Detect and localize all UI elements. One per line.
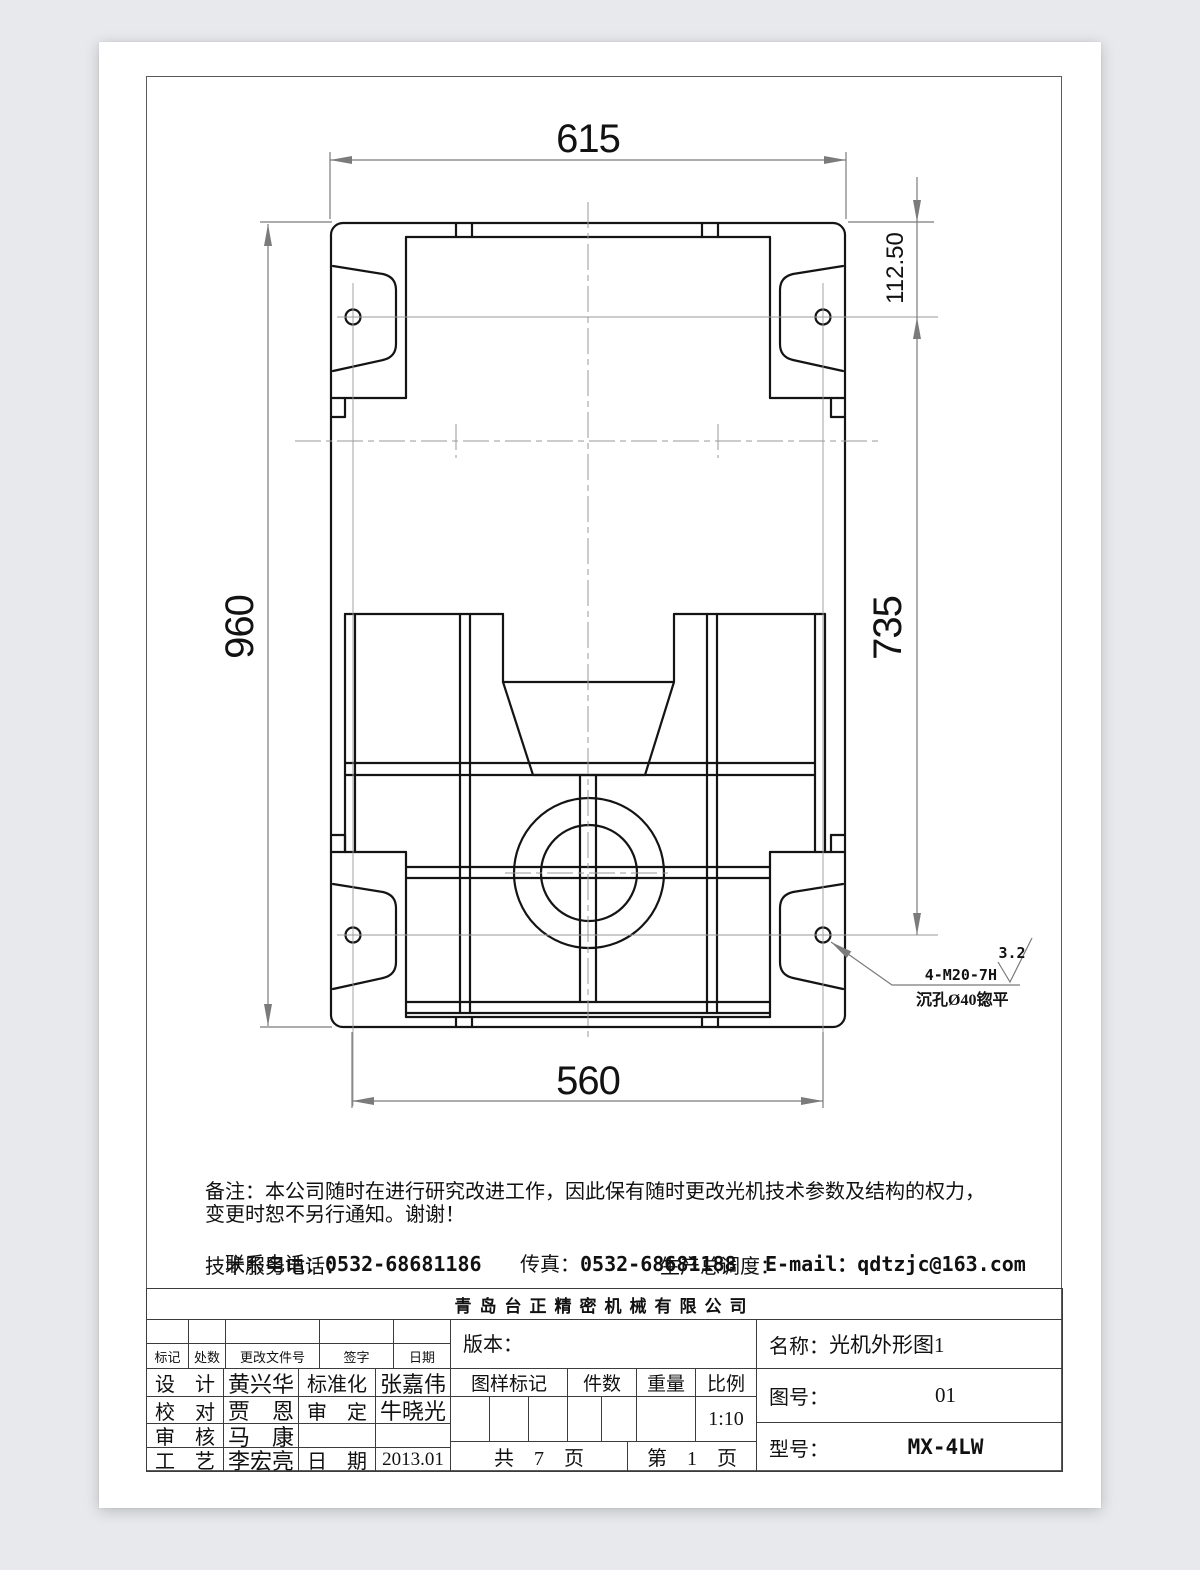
top-left-mounting-lug: [331, 237, 406, 417]
dim-height-left: 960: [218, 595, 262, 659]
note-line-1: 备注：本公司随时在进行研究改进工作，因此保有随时更改光机技术参数及结构的权力，: [205, 1181, 985, 1204]
mark-cell-empty: [450, 1396, 490, 1442]
sig-name-approve: 牛晓光: [375, 1396, 451, 1424]
weight-cell-empty: [636, 1396, 696, 1442]
rev-header-mark: 标记: [146, 1343, 189, 1369]
dim-width-bottom: 560: [556, 1059, 620, 1103]
mark-cell-empty: [528, 1396, 568, 1442]
sig-date-value: 2013.01: [375, 1447, 451, 1472]
rev-cell-empty: [319, 1319, 394, 1344]
rib-lines: [346, 614, 815, 1013]
scanned-engineering-drawing-page: { "drawing": { "dims": { "width_top": "6…: [0, 0, 1200, 1570]
sig-cell-empty: [298, 1423, 376, 1448]
machine-base-top-view-drawing: 615 960 735 112.50 560 4-M20-7H 沉孔Ø40锪平 …: [146, 76, 1062, 1176]
sig-cell-empty: [375, 1423, 451, 1448]
rev-cell-empty: [225, 1319, 320, 1344]
rev-header-date: 日期: [393, 1343, 451, 1369]
version-cell: 版本：: [450, 1319, 757, 1369]
service-phone-label: 技术服务电话：: [205, 1256, 345, 1279]
mark-header-sample: 图样标记: [450, 1368, 568, 1397]
mark-header-weight: 重量: [636, 1368, 696, 1397]
sig-role-design: 设 计: [146, 1368, 224, 1397]
model-label: 型号：: [757, 1433, 829, 1462]
sig-name-review: 马 康: [223, 1423, 299, 1448]
dimension-texts: 615 960 735 112.50 560 4-M20-7H 沉孔Ø40锪平 …: [218, 117, 1026, 1103]
sig-name-check: 贾 恩: [223, 1396, 299, 1424]
sig-role-date: 日 期: [298, 1447, 376, 1472]
dimension-lines: [260, 152, 1032, 1108]
sig-name-process: 李宏亮: [223, 1447, 299, 1472]
drawing-no-label: 图号：: [757, 1381, 829, 1410]
rev-header-sign: 签字: [319, 1343, 394, 1369]
email-value: qdtzjc@163.com: [857, 1252, 1026, 1276]
counterbore-callout: 沉孔Ø40锪平: [916, 990, 1008, 1009]
roughness-value: 3.2: [998, 944, 1025, 962]
pages-total-cell: 共 7 页: [450, 1441, 628, 1472]
rev-header-docno: 更改文件号: [225, 1343, 320, 1369]
mark-header-scale: 比例: [695, 1368, 757, 1397]
rev-header-count: 处数: [188, 1343, 226, 1369]
drawing-no-cell: 图号： 01: [756, 1368, 1063, 1423]
mark-header-qty: 件数: [567, 1368, 637, 1397]
part-name-label: 名称：: [757, 1330, 829, 1359]
mark-cell-empty: [489, 1396, 529, 1442]
rev-cell-empty: [188, 1319, 226, 1344]
bottom-right-mounting-lug: [770, 835, 845, 1017]
model-value: MX-4LW: [829, 1435, 1062, 1459]
dim-offset-right: 112.50: [882, 232, 909, 304]
sig-role-check: 校 对: [146, 1396, 224, 1424]
bottom-left-mounting-lug: [331, 835, 406, 1017]
model-cell: 型号： MX-4LW: [756, 1422, 1063, 1472]
contact-phone: 0532-68681186: [325, 1252, 482, 1276]
sig-name-standardize: 张嘉伟: [375, 1368, 451, 1397]
drawing-sheet: 615 960 735 112.50 560 4-M20-7H 沉孔Ø40锪平 …: [99, 42, 1101, 1508]
sig-role-review: 审 核: [146, 1423, 224, 1448]
part-name-cell: 名称： 光机外形图1: [756, 1319, 1063, 1369]
top-right-mounting-lug: [770, 237, 845, 417]
part-name-value: 光机外形图1: [829, 1329, 945, 1359]
rev-cell-empty: [393, 1319, 451, 1344]
title-block: 青岛台正精密机械有限公司 标记 处数 更改文件号 签字 日期 设 计 黄兴华 标…: [146, 1288, 1063, 1472]
scale-value: 1:10: [695, 1396, 757, 1442]
page-number-cell: 第 1 页: [627, 1441, 757, 1472]
note-line-2: 变更时恕不另行通知。谢谢！: [205, 1204, 465, 1227]
sig-name-design: 黄兴华: [223, 1368, 299, 1397]
fax-label: 传真：: [520, 1254, 580, 1276]
drawing-no-value: 01: [829, 1383, 1062, 1408]
sig-role-standardize: 标准化: [298, 1368, 376, 1397]
dim-height-right: 735: [866, 596, 910, 660]
rev-cell-empty: [146, 1319, 189, 1344]
company-name: 青岛台正精密机械有限公司: [146, 1288, 1063, 1320]
sig-role-process: 工 艺: [146, 1447, 224, 1472]
version-label: 版本：: [451, 1328, 523, 1357]
thread-spec-callout: 4-M20-7H: [925, 966, 997, 984]
qty-cell-empty: [567, 1396, 602, 1442]
centerlines: [295, 202, 938, 1106]
dispatch-label: 生产总调度：: [660, 1256, 780, 1279]
qty-cell-empty: [601, 1396, 637, 1442]
dim-width-top: 615: [556, 117, 620, 161]
rib-block-walls: [345, 614, 825, 852]
sig-role-approve: 审 定: [298, 1396, 376, 1424]
